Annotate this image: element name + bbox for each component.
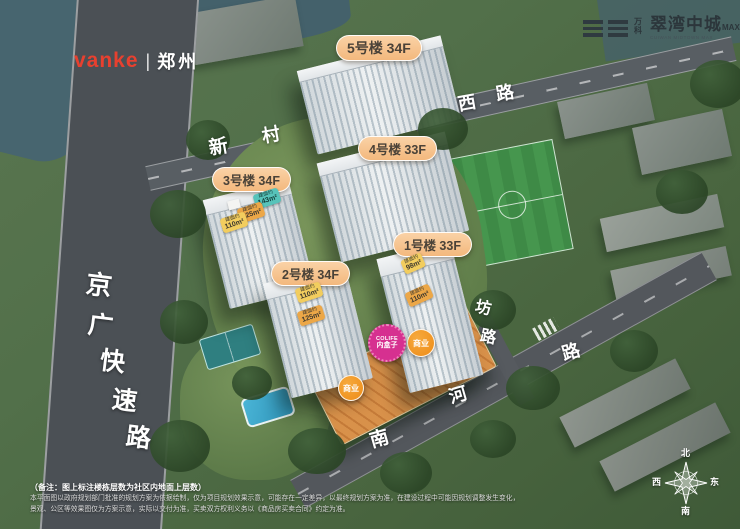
road-label-jingguang-5: 路 <box>125 425 153 453</box>
tree-cluster <box>656 170 708 214</box>
brand-divider: | <box>146 51 151 72</box>
commercial-badge: 商业 <box>338 375 364 401</box>
disclaimer: （备注：图上标注楼栋层数为社区内地面上层数） 本平面图以政府规划部门批准的规划方… <box>30 482 670 515</box>
city-name: 郑州 <box>157 48 199 74</box>
disclaimer-line3: 景观、公区等效果图仅为方案示意，实际以交付为准，买卖双方权利义务以《商品房买卖合… <box>30 505 670 516</box>
tree-cluster <box>506 366 560 410</box>
project-suffix: MAX <box>722 23 740 32</box>
tree-cluster <box>288 428 346 474</box>
brand-lockup-left: vanke | 郑州 <box>74 48 199 74</box>
building-label-4: 4号楼 33F <box>358 136 437 161</box>
road-label-xincun-3: 西 <box>457 93 478 114</box>
disclaimer-line2: 本平面图以政府规划部门批准的规划方案为依据绘制，仅为项目规划效果示意，可能存在一… <box>30 494 670 505</box>
tree-cluster <box>232 366 272 400</box>
compass-north: 北 <box>681 446 690 459</box>
building-label-2: 2号楼 34F <box>271 261 350 286</box>
building-label-5: 5号楼 34F <box>336 35 422 61</box>
commercial-badge: 商业 <box>407 329 435 357</box>
vanke-wordmark: vanke <box>74 49 139 73</box>
building-label-3: 3号楼 34F <box>212 167 291 192</box>
road-label-jingguang-3: 快 <box>99 349 127 377</box>
project-name-cn: 翠湾中城 <box>650 15 722 34</box>
colife-badge: COLIFE 内盒子 <box>368 324 406 362</box>
road-label-jingguang-4: 速 <box>111 388 139 416</box>
tree-cluster <box>160 300 208 344</box>
building-label-1: 1号楼 33F <box>393 232 472 257</box>
tree-cluster <box>470 420 516 458</box>
project-logo: 万科 翠湾中城MAX CUIWAN MIDTOWN MAX <box>583 16 740 41</box>
tree-cluster <box>150 420 210 472</box>
road-label-fang-2: 路 <box>479 329 498 348</box>
tree-cluster <box>690 60 740 108</box>
site-plan-aerial-map: vanke | 郑州 万科 翠湾中城MAX CUIWAN MIDTOWN MAX… <box>0 0 740 529</box>
road-label-xincun-2: 村 <box>261 125 282 146</box>
tree-cluster <box>610 330 658 372</box>
project-tagline: CUIWAN MIDTOWN MAX <box>650 36 740 41</box>
road-label-jingguang-2: 广 <box>87 313 115 341</box>
road-label-xincun-1: 新 <box>207 136 229 158</box>
colife-line2: 内盒子 <box>377 342 398 350</box>
project-name: 翠湾中城MAX CUIWAN MIDTOWN MAX <box>650 16 740 41</box>
compass-south: 南 <box>681 504 690 517</box>
road-label-jingguang-1: 京 <box>85 271 114 300</box>
road-label-xincun-4: 路 <box>495 83 516 104</box>
vanke-logo-mark-icon <box>583 20 628 37</box>
compass-star-icon <box>664 461 708 505</box>
road-label-fang-1: 坊 <box>474 300 493 319</box>
disclaimer-note: （备注：图上标注楼栋层数为社区内地面上层数） <box>30 482 670 493</box>
company-name: 万科 <box>634 18 644 36</box>
tree-cluster <box>150 190 206 238</box>
compass-east: 东 <box>710 475 719 488</box>
city-block <box>186 0 303 65</box>
